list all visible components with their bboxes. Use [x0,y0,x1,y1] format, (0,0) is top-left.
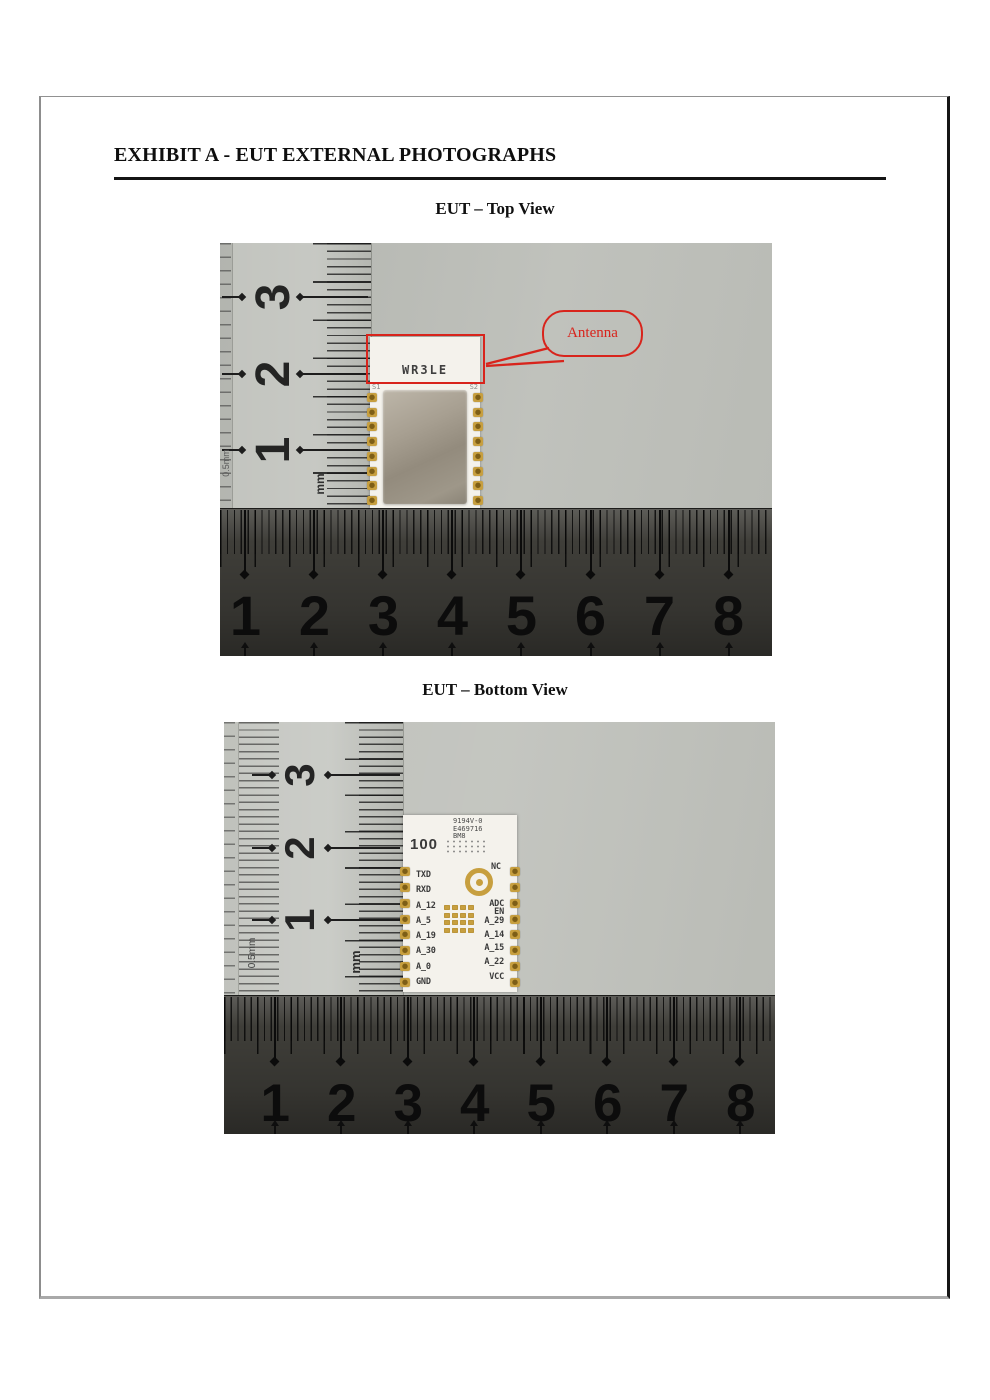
vnum-1: 3 [251,275,295,319]
pad-6 [473,467,483,476]
hnum-4: 4 [418,591,487,641]
pad-2 [400,883,410,892]
antenna-callout-bubble: Antenna [542,310,643,357]
vnum-1: 3 [279,754,321,796]
hnum-1: 1 [242,1080,309,1128]
uparr-8 [739,1126,741,1134]
pad-2 [473,408,483,417]
pad-6 [400,946,410,955]
uparr-2 [313,648,315,656]
gpad-1 [444,905,450,910]
pad-8 [473,496,483,505]
pad-1 [400,867,410,876]
hnum-4: 4 [442,1080,509,1128]
gpad-10 [452,920,458,925]
uparr-7 [673,1126,675,1134]
hnum-6: 6 [575,1080,642,1128]
uparr-3 [382,648,384,656]
gpad-6 [452,913,458,918]
gpad-4 [468,905,474,910]
castellated-pads-right [510,867,520,987]
rf-shield [383,390,467,504]
pin-6: A_22 [484,957,504,967]
pad-8 [510,978,520,987]
hnum-5: 5 [508,1080,575,1128]
pad-3 [473,422,483,431]
hnum-2: 2 [280,591,349,641]
eut-top-view-photo: 321 mm 0.5mm WR3LE S1 S2 Antenna 1234567… [220,243,772,656]
pad-6 [367,467,377,476]
pad-1 [473,393,483,402]
castellated-pads-right [473,393,483,505]
vnum-2: 2 [251,352,295,396]
hnum-8: 8 [694,591,763,641]
gpad-8 [468,913,474,918]
left-edge-ruler-ticks [224,722,235,995]
pin-3: A_29 [484,916,504,926]
horizontal-ruler: 12345678 [220,508,772,656]
horizontal-ruler-numbers: 12345678 [242,1080,774,1128]
gpad-16 [468,928,474,933]
pad-1 [510,867,520,876]
pad-7 [367,481,377,490]
pad-5 [510,930,520,939]
pad-3 [367,422,377,431]
pad-5 [400,930,410,939]
pad-4 [367,437,377,446]
uparr-4 [451,648,453,656]
pad-7 [473,481,483,490]
section-heading-bottom-view: EUT – Bottom View [0,680,990,700]
gpad-11 [460,920,466,925]
gpad-3 [460,905,466,910]
pad-4 [400,915,410,924]
hnum-3: 3 [349,591,418,641]
vnum-3: 1 [251,428,295,472]
uparr-5 [540,1126,542,1134]
halfcm-ticks [220,510,772,567]
castellated-pads-left [367,393,377,505]
right-pin-labels: ADCENA_29A_14A_15A_22VCC [403,815,517,992]
uparr-5 [520,648,522,656]
pad-6 [510,946,520,955]
uparr-1 [244,648,246,656]
uparr-6 [606,1126,608,1134]
uparr-3 [407,1126,409,1134]
uparr-6 [590,648,592,656]
document-page: { "page": { "title": "EXHIBIT A - EUT EX… [0,0,990,1400]
section-heading-top-view: EUT – Top View [0,199,990,219]
pad-3 [400,899,410,908]
gpad-9 [444,920,450,925]
ruler-resolution-label: 0.5mm [245,933,259,973]
eut-bottom-view-photo: 321 mm 0.5mm 9194V-0E469716BM8 100 NC TX… [224,722,775,1134]
pad-5 [473,452,483,461]
uparr-4 [473,1126,475,1134]
gpad-7 [460,913,466,918]
corner-label-s1: S1 [372,383,380,391]
halfcm-ticks [313,243,371,508]
hnum-7: 7 [625,591,694,641]
pad-3 [510,899,520,908]
pad-7 [510,962,520,971]
vnum-2: 2 [279,827,321,869]
castellated-pads-left [400,867,410,987]
title-underline [114,177,886,180]
gpad-14 [452,928,458,933]
antenna-highlight-box [366,334,485,384]
gpad-5 [444,913,450,918]
horizontal-ruler: 12345678 5mm [224,995,775,1134]
pin-7: VCC [489,972,504,982]
pad-1 [367,393,377,402]
pad-2 [510,883,520,892]
uparr-2 [340,1126,342,1134]
pin-5: A_15 [484,943,504,953]
mm-unit-label: mm [347,947,363,977]
gpad-13 [444,928,450,933]
hnum-1: 1 [220,591,280,641]
ruler-resolution-label: 0.5mm [220,443,232,483]
pad-5 [367,452,377,461]
antenna-callout-label: Antenna [567,325,618,342]
thermal-pad-grid [444,905,474,933]
mm-unit-label: mm [313,470,327,498]
pad-4 [510,915,520,924]
gpad-12 [468,920,474,925]
uparr-8 [728,648,730,656]
pad-4 [473,437,483,446]
pin-4: A_14 [484,930,504,940]
gpad-15 [460,928,466,933]
pad-8 [367,496,377,505]
uparr-1 [274,1126,276,1134]
pad-2 [367,408,377,417]
halfcm-ticks [224,997,775,1054]
hnum-6: 6 [556,591,625,641]
horizontal-ruler-numbers: 12345678 [220,591,763,641]
hnum-7: 7 [641,1080,708,1128]
eut-module-bottom: 9194V-0E469716BM8 100 NC TXDRXDA_12A_5A_… [403,815,517,992]
pad-8 [400,978,410,987]
hnum-3: 3 [375,1080,442,1128]
gpad-2 [452,905,458,910]
hnum-8: 8 [708,1080,775,1128]
pad-7 [400,962,410,971]
page-title: EXHIBIT A - EUT EXTERNAL PHOTOGRAPHS [114,144,556,167]
vertical-ruler: 321 [238,722,404,995]
hnum-2: 2 [309,1080,376,1128]
vertical-ruler: 321 [232,243,372,508]
uparr-7 [659,648,661,656]
corner-label-s2: S2 [470,383,478,391]
vnum-3: 1 [279,899,321,941]
hnum-5: 5 [487,591,556,641]
